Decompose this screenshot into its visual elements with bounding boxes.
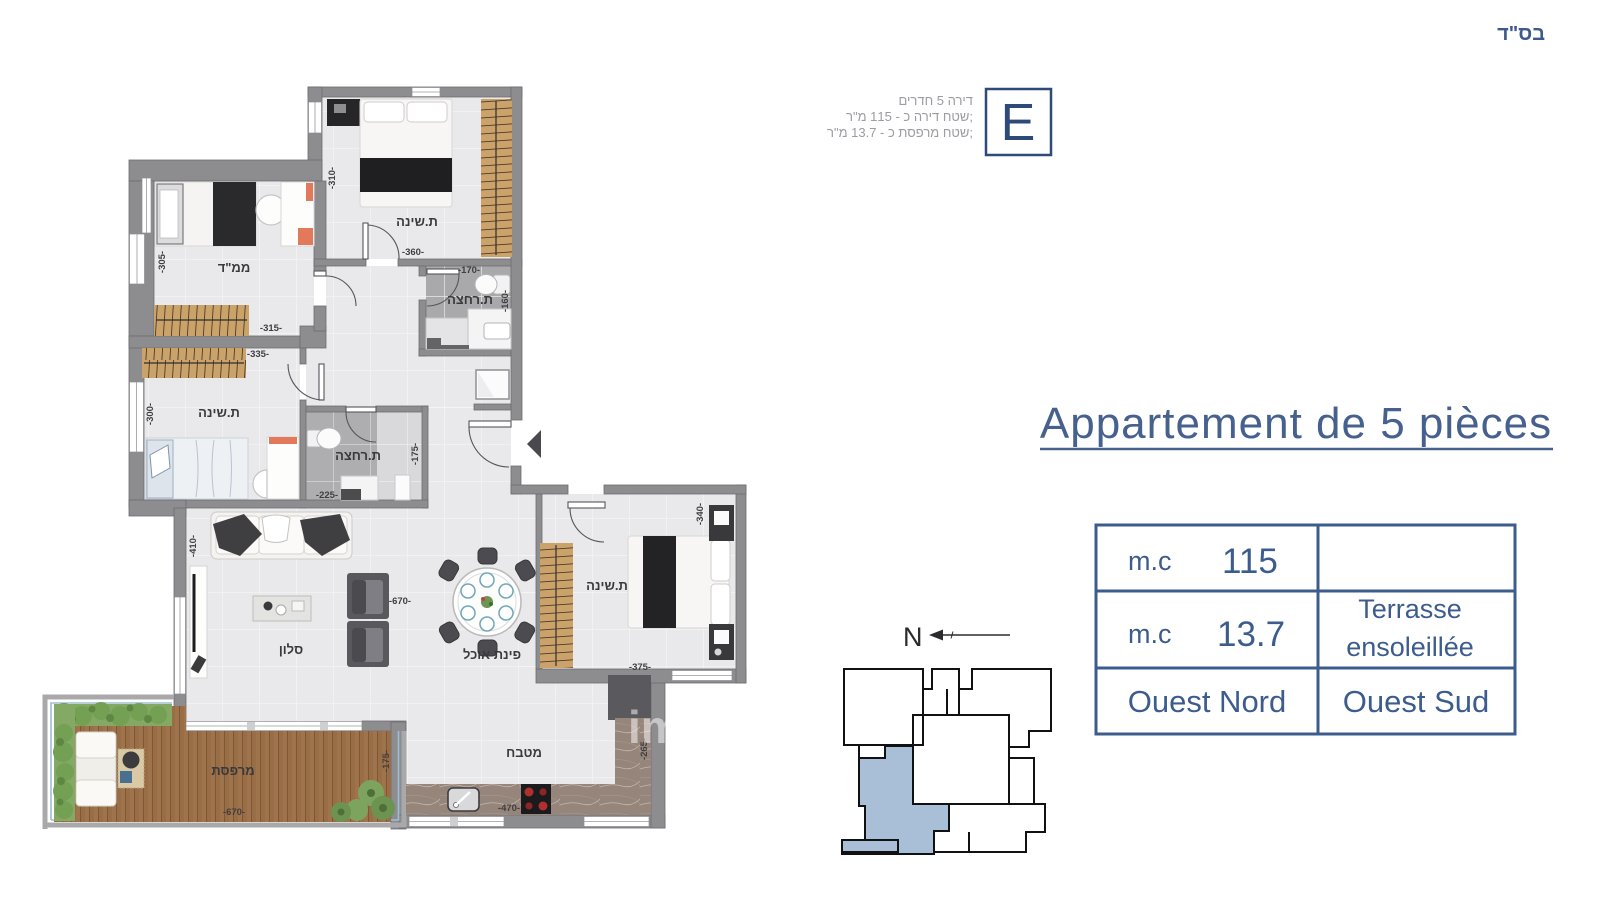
svg-text:Ouest Sud: Ouest Sud bbox=[1343, 684, 1489, 719]
svg-text:שטח דירה כ - 115 מ"ר;: שטח דירה כ - 115 מ"ר; bbox=[846, 109, 973, 124]
svg-text:-470-: -470- bbox=[498, 803, 520, 814]
svg-text:ת.רחצה: ת.רחצה bbox=[335, 448, 381, 463]
svg-text:N: N bbox=[903, 622, 923, 652]
svg-text:-410-: -410- bbox=[188, 535, 199, 557]
svg-text:ensoleillée: ensoleillée bbox=[1346, 632, 1474, 662]
svg-text:-315-: -315- bbox=[260, 323, 282, 334]
svg-text:-375-: -375- bbox=[629, 662, 651, 673]
svg-text:-335-: -335- bbox=[247, 349, 269, 360]
svg-text:-175-: -175- bbox=[410, 443, 421, 465]
svg-text:-300-: -300- bbox=[145, 403, 156, 425]
svg-text:ת.שינה: ת.שינה bbox=[586, 578, 628, 593]
svg-text:ת.שינה: ת.שינה bbox=[396, 214, 438, 229]
svg-text:סלון: סלון bbox=[279, 642, 303, 657]
svg-text:-225-: -225- bbox=[316, 490, 338, 501]
svg-text:-310-: -310- bbox=[327, 167, 338, 189]
svg-text:-340-: -340- bbox=[695, 503, 706, 525]
svg-text:im: im bbox=[628, 701, 682, 753]
svg-text:E: E bbox=[1001, 94, 1036, 152]
svg-text:פינת אוכל: פינת אוכל bbox=[463, 647, 521, 662]
svg-text:שטח מרפסת כ - 13.7 מ"ר;: שטח מרפסת כ - 13.7 מ"ר; bbox=[827, 125, 973, 140]
svg-text:-670-: -670- bbox=[389, 596, 411, 607]
svg-text:-175-: -175- bbox=[381, 750, 392, 772]
svg-text:מרפסת: מרפסת bbox=[211, 763, 254, 778]
svg-text:-170-: -170- bbox=[458, 265, 480, 276]
svg-text:m.c: m.c bbox=[1128, 546, 1172, 576]
svg-text:ת.שינה: ת.שינה bbox=[198, 405, 240, 420]
svg-text:מטבח: מטבח bbox=[506, 745, 542, 760]
svg-text:13.7: 13.7 bbox=[1217, 615, 1285, 654]
svg-text:-160-: -160- bbox=[500, 290, 511, 312]
svg-text:ממ"ד: ממ"ד bbox=[218, 260, 251, 275]
svg-text:m.c: m.c bbox=[1128, 619, 1172, 649]
svg-text:-305-: -305- bbox=[157, 251, 168, 273]
svg-text:בס"ד: בס"ד bbox=[1497, 23, 1545, 45]
svg-text:Appartement de 5 pièces: Appartement de 5 pièces bbox=[1040, 399, 1552, 448]
svg-text:Ouest Nord: Ouest Nord bbox=[1128, 684, 1287, 719]
svg-text:115: 115 bbox=[1222, 542, 1278, 581]
svg-text:-670-: -670- bbox=[223, 807, 245, 818]
svg-text:Terrasse: Terrasse bbox=[1358, 594, 1462, 624]
svg-text:דירה 5 חדרים: דירה 5 חדרים bbox=[899, 93, 974, 108]
svg-text:ת.רחצה: ת.רחצה bbox=[447, 292, 493, 307]
svg-text:-360-: -360- bbox=[402, 247, 424, 258]
